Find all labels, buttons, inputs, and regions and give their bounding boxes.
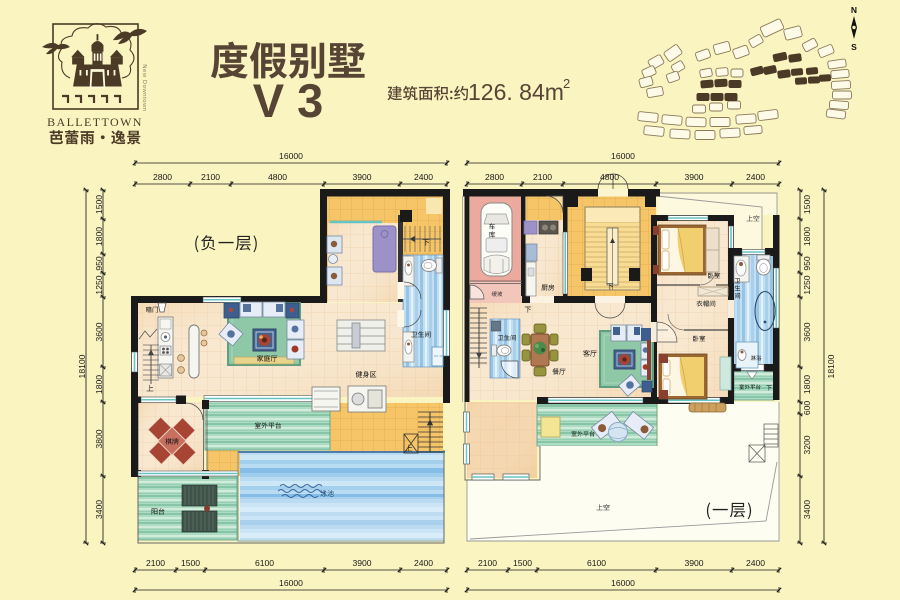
svg-text:6100: 6100 (587, 558, 606, 568)
svg-text:18100: 18100 (77, 354, 87, 378)
svg-text:2100: 2100 (201, 172, 220, 182)
svg-text:3400: 3400 (94, 500, 104, 519)
svg-text:16000: 16000 (611, 151, 635, 161)
svg-text:1250: 1250 (94, 275, 104, 294)
svg-text:2400: 2400 (414, 172, 433, 182)
svg-text:3900: 3900 (352, 172, 371, 182)
svg-text:1500: 1500 (513, 558, 532, 568)
svg-text:3200: 3200 (802, 435, 812, 454)
svg-text:950: 950 (802, 256, 812, 271)
svg-text:2100: 2100 (533, 172, 552, 182)
svg-text:4800: 4800 (600, 172, 619, 182)
svg-text:1800: 1800 (94, 227, 104, 246)
svg-text:S: S (851, 42, 857, 52)
svg-text:New Downtown: New Downtown (141, 64, 147, 111)
svg-text:950: 950 (94, 256, 104, 271)
svg-text:4800: 4800 (268, 172, 287, 182)
svg-text:2400: 2400 (746, 172, 765, 182)
svg-text:1800: 1800 (802, 375, 812, 394)
svg-text:3900: 3900 (352, 558, 371, 568)
svg-text:3400: 3400 (802, 500, 812, 519)
svg-text:3600: 3600 (802, 322, 812, 341)
svg-text:2400: 2400 (746, 558, 765, 568)
svg-text:BALLETTOWN: BALLETTOWN (47, 115, 143, 129)
svg-text:1800: 1800 (94, 375, 104, 394)
svg-text:2800: 2800 (485, 172, 504, 182)
svg-text:3900: 3900 (684, 172, 703, 182)
svg-text:1500: 1500 (802, 195, 812, 214)
svg-text:N: N (851, 5, 857, 15)
svg-text:2400: 2400 (414, 558, 433, 568)
svg-text:16000: 16000 (279, 151, 303, 161)
svg-text:2100: 2100 (478, 558, 497, 568)
svg-text:1250: 1250 (802, 275, 812, 294)
svg-text:2: 2 (563, 76, 570, 91)
svg-text:1500: 1500 (94, 195, 104, 214)
svg-text:V 3: V 3 (253, 74, 324, 127)
svg-text:3900: 3900 (684, 558, 703, 568)
svg-text:126. 84m: 126. 84m (468, 79, 564, 105)
svg-text:1500: 1500 (181, 558, 200, 568)
svg-text:3600: 3600 (94, 322, 104, 341)
svg-text:3800: 3800 (94, 429, 104, 448)
svg-text:16000: 16000 (279, 578, 303, 588)
svg-text:600: 600 (802, 401, 812, 416)
svg-text:1800: 1800 (802, 227, 812, 246)
svg-text:16000: 16000 (611, 578, 635, 588)
svg-text:2800: 2800 (153, 172, 172, 182)
svg-text:2100: 2100 (146, 558, 165, 568)
svg-text:18100: 18100 (826, 354, 836, 378)
svg-text:6100: 6100 (255, 558, 274, 568)
